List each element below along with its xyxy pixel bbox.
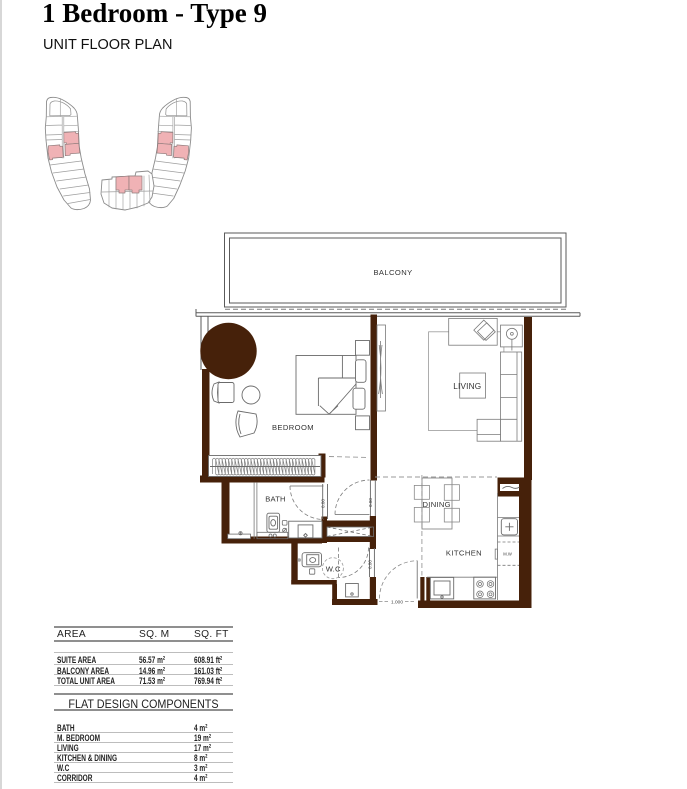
svg-text:KITCHEN: KITCHEN [446,549,482,558]
svg-text:LIVING: LIVING [453,382,481,391]
svg-text:M.W: M.W [503,552,512,557]
svg-text:BEDROOM: BEDROOM [272,423,314,432]
svg-text:DINING: DINING [423,500,451,509]
svg-text:BATH: BATH [265,495,286,504]
svg-text:1.000: 1.000 [391,600,403,606]
svg-text:BALCONY: BALCONY [373,268,412,277]
svg-text:0.80: 0.80 [368,560,373,569]
svg-text:0.80: 0.80 [321,499,326,508]
svg-text:0.80: 0.80 [368,498,373,507]
